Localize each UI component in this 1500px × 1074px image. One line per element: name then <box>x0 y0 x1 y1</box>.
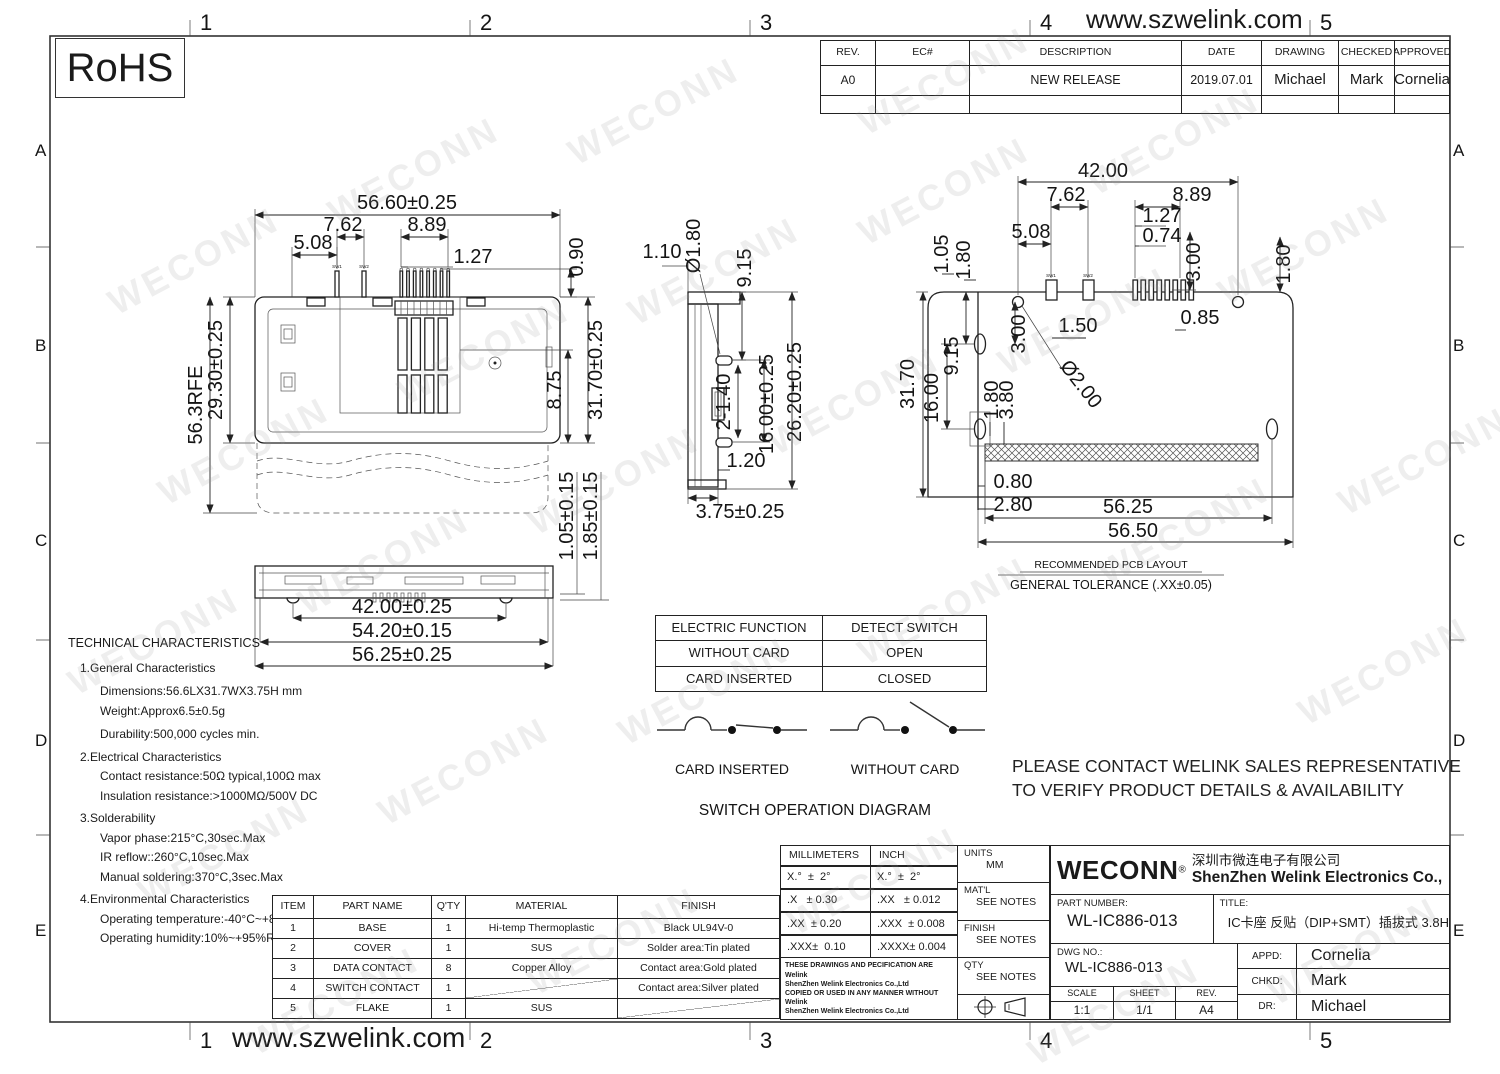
rohs-badge: RoHS <box>55 38 185 98</box>
title-block: WECONN® 深圳市微连电子有限公司 ShenZhen Welink Elec… <box>1050 845 1450 1020</box>
dim-label: 0.90 <box>566 238 588 277</box>
top-view: SW1 SW2 <box>185 192 607 513</box>
dim-label: 1.27 <box>1143 205 1182 227</box>
grid-col-label: 3 <box>760 1028 772 1053</box>
dim-label: 5.08 <box>294 232 333 254</box>
parts-cell: SWITCH CONTACT <box>313 979 431 998</box>
grid-row-label: B <box>1453 336 1464 355</box>
website-link-top[interactable]: www.szwelink.com <box>1086 4 1303 35</box>
dim-label: 5.08 <box>1012 221 1051 243</box>
parts-cell: 3 <box>273 959 313 978</box>
pcb-caption: RECOMMENDED PCB LAYOUT <box>1034 559 1188 571</box>
tech-line: Manual soldering:370°C,3sec.Max <box>100 868 321 888</box>
hatch-strip <box>985 444 1258 461</box>
dim-label: 1.80 <box>953 241 975 280</box>
parts-cell: 1 <box>431 939 465 958</box>
disclaimer-line: ShenZhen Welink Electronics Co.,Ltd <box>785 980 953 989</box>
parts-cell: COVER <box>313 939 431 958</box>
parts-cell: Hi-temp Thermoplastic <box>465 919 617 938</box>
dim-label: 56.25±0.25 <box>352 644 452 666</box>
finish-label: FINISH <box>964 923 1049 934</box>
sheet-value: 1/1 <box>1113 1002 1175 1019</box>
dim-label: 9.15 <box>734 249 756 288</box>
scale-label: SCALE <box>1051 987 1113 1001</box>
electric-cell: ELECTRIC FUNCTION <box>656 616 822 640</box>
parts-header: Q'TY <box>431 896 465 918</box>
rev-cell <box>1338 96 1394 113</box>
dim-label: 8.89 <box>408 214 447 236</box>
appd-value: Cornelia <box>1296 944 1449 968</box>
website-link-bottom[interactable]: www.szwelink.com <box>232 1022 465 1054</box>
parts-cell: Contact area:Gold plated <box>617 959 779 978</box>
electric-function-table: ELECTRIC FUNCTION DETECT SWITCH WITHOUT … <box>655 615 987 692</box>
parts-cell: 1 <box>431 919 465 938</box>
grid-row-label: C <box>1453 531 1465 550</box>
parts-cell: 1 <box>431 979 465 998</box>
copyright-disclaimer: THESE DRAWINGS AND PECIFICATION ARE Weli… <box>781 958 957 1019</box>
tol-header: INCH <box>870 846 957 865</box>
units-column: UNITS MM MAT'L SEE NOTES FINISH SEE NOTE… <box>957 846 1049 1019</box>
rev-cell: Cornelia <box>1394 66 1449 95</box>
rev-header: DATE <box>1181 41 1261 65</box>
rev-cell <box>1181 96 1261 113</box>
rev-cell <box>1394 96 1449 113</box>
dim-label: 1.50 <box>1059 315 1098 337</box>
rev-cell: Michael <box>1261 66 1338 95</box>
electric-cell: CARD INSERTED <box>656 667 822 691</box>
parts-header: ITEM <box>273 896 313 918</box>
switch-open-symbol <box>830 702 985 730</box>
pcb-layout-view: SW1 SW2 42.00 7.62 8.89 5.08 1.27 <box>897 160 1295 592</box>
dim-label: Ø1.80 <box>683 219 705 273</box>
grid-row-label: D <box>1453 731 1465 750</box>
dim-label: 56.50 <box>1108 520 1158 542</box>
disclaimer-line: ShenZhen Welink Electronics Co.,Ltd <box>785 1007 953 1016</box>
dim-label: Ø2.00 <box>1055 356 1106 412</box>
tol-cell: X.° ± 2° <box>781 867 870 888</box>
part-title-row: PART NUMBER: WL-IC886-013 TITLE: IC卡座 反贴… <box>1051 895 1449 944</box>
qty-value: SEE NOTES <box>964 971 1049 983</box>
card-outline-dashed <box>257 443 548 513</box>
dim-label: 0.74 <box>1143 225 1182 247</box>
electric-cell: CLOSED <box>822 667 986 691</box>
dim-label: 9.15 <box>941 337 963 376</box>
notice-line: TO VERIFY PRODUCT DETAILS & AVAILABILITY <box>1012 779 1461 803</box>
dim-label: 56.60±0.25 <box>357 192 457 214</box>
dim-label: 56.25 <box>1103 496 1153 518</box>
parts-cell: Black UL94V-0 <box>617 919 779 938</box>
grid-row-label: C <box>35 531 47 550</box>
product-title: IC卡座 反贴（DIP+SMT）插拔式 3.8H <box>1220 909 1449 931</box>
dim-label: 56.3RFE <box>185 366 207 445</box>
rohs-label: RoHS <box>67 46 174 91</box>
dr-value: Michael <box>1296 995 1449 1019</box>
dim-label: 54.20±0.15 <box>352 620 452 642</box>
top-view-dimensions: 56.60±0.25 7.62 8.89 5.08 1.27 0.90 8.75… <box>185 192 607 513</box>
chkd-value: Mark <box>1296 969 1449 993</box>
dim-label: 1.10 <box>643 241 682 263</box>
title-label: TITLE: <box>1220 898 1449 909</box>
dim-label: 1.05±0.15 <box>556 472 578 561</box>
parts-cell: Copper Alloy <box>465 959 617 978</box>
units-value: MM <box>964 859 1049 871</box>
rev-cell <box>969 96 1181 113</box>
dr-label: DR: <box>1238 995 1296 1019</box>
company-header: WECONN® 深圳市微连电子有限公司 ShenZhen Welink Elec… <box>1051 846 1449 895</box>
parts-cell: Contact area:Silver plated <box>617 979 779 998</box>
parts-cell <box>617 999 779 1018</box>
qty-label: QTY <box>964 960 1049 971</box>
parts-header: PART NAME <box>313 896 431 918</box>
grid-col-label: 4 <box>1040 1028 1052 1053</box>
dwg-no-label: DWG NO.: <box>1057 947 1237 958</box>
dim-label: 3.00 <box>1008 315 1030 354</box>
rev-header: CHECKED <box>1338 41 1394 65</box>
chkd-label: CHKD: <box>1238 969 1296 993</box>
grid-col-label: 1 <box>200 10 212 35</box>
units-label: UNITS <box>964 848 1049 859</box>
parts-cell: 1 <box>273 919 313 938</box>
grid-col-label: 5 <box>1320 10 1332 35</box>
dim-label: 29.30±0.25 <box>205 320 227 420</box>
tol-cell: .XX ± 0.012 <box>870 890 957 911</box>
part-number-label: PART NUMBER: <box>1057 898 1213 909</box>
tol-cell: .XXX± 0.10 <box>781 936 870 957</box>
rev-cell: A0 <box>821 66 875 95</box>
electric-cell: WITHOUT CARD <box>656 641 822 665</box>
dim-label: 3.75±0.25 <box>696 501 785 523</box>
notice-line: PLEASE CONTACT WELINK SALES REPRESENTATI… <box>1012 755 1461 779</box>
tech-line: 2.Electrical Characteristics <box>80 748 321 768</box>
rev-header: EC# <box>875 41 969 65</box>
dim-label: 1.20 <box>727 450 766 472</box>
tech-line: Weight:Approx6.5±0.5g <box>100 702 321 722</box>
tech-line: IR reflow::260°C,10sec.Max <box>100 848 321 868</box>
dim-label: 42.00±0.25 <box>352 596 452 618</box>
rev-value: A4 <box>1175 1002 1237 1019</box>
revision-table: REV. EC# DESCRIPTION DATE DRAWING CHECKE… <box>820 40 1450 114</box>
switch-closed-label: CARD INSERTED <box>675 761 789 777</box>
dim-label: 16.00±0.25 <box>756 354 778 454</box>
parts-cell: Solder area:Tin plated <box>617 939 779 958</box>
switch-open-label: WITHOUT CARD <box>851 761 960 777</box>
tech-line: 3.Solderability <box>80 809 321 829</box>
dim-label: 1.80 <box>1273 245 1295 284</box>
rev-header: DESCRIPTION <box>969 41 1181 65</box>
grid-col-label: 2 <box>480 1028 492 1053</box>
grid-col-label: 2 <box>480 10 492 35</box>
parts-cell: 8 <box>431 959 465 978</box>
engineering-drawing-page: { "page": { "website": "www.szwelink.com… <box>0 0 1500 1060</box>
dim-label: 31.70 <box>897 359 919 409</box>
dim-label: 26.20±0.25 <box>784 342 806 442</box>
grid-row-label: E <box>35 921 46 940</box>
dim-label: 2-1.40 <box>713 374 735 431</box>
dim-label: 1.27 <box>454 246 493 268</box>
dwg-no-value: WL-IC886-013 <box>1057 958 1237 976</box>
parts-cell: SUS <box>465 939 617 958</box>
tech-line: Durability:500,000 cycles min. <box>100 725 321 745</box>
dim-label: 3.80 <box>996 381 1018 420</box>
tol-cell: .XX ± 0.20 <box>781 913 870 934</box>
tolerance-table: MILLIMETERS INCH X.° ± 2° X.° ± 2° .X ± … <box>781 846 957 1019</box>
parts-cell: 5 <box>273 999 313 1018</box>
electric-cell: DETECT SWITCH <box>822 616 986 640</box>
grid-row-label: D <box>35 731 47 750</box>
grid-col-label: 5 <box>1320 1028 1332 1053</box>
matl-value: SEE NOTES <box>964 896 1049 908</box>
grid-col-label: 3 <box>760 10 772 35</box>
contact-pins <box>400 268 450 297</box>
parts-cell: 4 <box>273 979 313 998</box>
sales-notice: PLEASE CONTACT WELINK SALES REPRESENTATI… <box>1012 755 1461 802</box>
parts-table: ITEM PART NAME Q'TY MATERIAL FINISH 1 BA… <box>272 895 780 1019</box>
parts-cell <box>465 979 617 998</box>
rev-cell <box>821 96 875 113</box>
parts-header: FINISH <box>617 896 779 918</box>
rev-cell <box>1261 96 1338 113</box>
rev-cell: 2019.07.01 <box>1181 66 1261 95</box>
side-section-view: 1.10 Ø1.80 9.15 2-1.40 16.00±0.25 26.20±… <box>643 219 806 523</box>
pcb-view-dimensions: 42.00 7.62 8.89 5.08 1.27 0.74 3.00 1.80… <box>897 160 1295 592</box>
part-number-value: WL-IC886-013 <box>1057 909 1213 931</box>
side-view-dimensions: 1.10 Ø1.80 9.15 2-1.40 16.00±0.25 26.20±… <box>643 219 806 523</box>
parts-cell: FLAKE <box>313 999 431 1018</box>
rev-header: REV. <box>821 41 875 65</box>
parts-cell: SUS <box>465 999 617 1018</box>
dim-label: 31.70±0.25 <box>585 320 607 420</box>
finish-value: SEE NOTES <box>964 934 1049 946</box>
dim-label: 42.00 <box>1078 160 1128 182</box>
switch-operation-diagram: CARD INSERTED WITHOUT CARD SWITCH OPERAT… <box>655 692 995 832</box>
switch-diagram-title: SWITCH OPERATION DIAGRAM <box>699 802 931 819</box>
dim-label: 0.85 <box>1181 307 1220 329</box>
parts-cell: 2 <box>273 939 313 958</box>
sheet-label: SHEET <box>1113 987 1175 1001</box>
tolerance-block: MILLIMETERS INCH X.° ± 2° X.° ± 2° .X ± … <box>780 845 1050 1020</box>
matl-label: MAT'L <box>964 885 1049 896</box>
disclaimer-line: THESE DRAWINGS AND PECIFICATION ARE Weli… <box>785 961 953 979</box>
pcb-tolerance-caption: GENERAL TOLERANCE (.XX±0.05) <box>1010 578 1212 592</box>
parts-cell: BASE <box>313 919 431 938</box>
rev-cell: NEW RELEASE <box>969 66 1181 95</box>
contact-springs <box>398 318 447 413</box>
rev-cell <box>875 66 969 95</box>
tol-header: MILLIMETERS <box>781 846 870 865</box>
scale-value: 1:1 <box>1051 1002 1113 1019</box>
parts-cell: DATA CONTACT <box>313 959 431 978</box>
dim-label: 0.80 <box>994 471 1033 493</box>
dim-label: 2.80 <box>994 494 1033 516</box>
third-angle-projection-icon <box>973 995 1035 1019</box>
rev-header: DRAWING <box>1261 41 1338 65</box>
rev-header: APPROVED <box>1394 41 1449 65</box>
grid-row-label: A <box>1453 141 1465 160</box>
tol-cell: .X ± 0.30 <box>781 890 870 911</box>
dim-label: 1.05 <box>931 235 953 274</box>
grid-row-label: E <box>1453 921 1464 940</box>
company-logo: WECONN <box>1057 855 1178 885</box>
tech-line: Insulation resistance:>1000MΩ/500V DC <box>100 787 321 807</box>
tol-cell: .XXX ± 0.008 <box>870 913 957 934</box>
company-name-en: ShenZhen Welink Electronics Co.,Ltd <box>1192 869 1443 888</box>
tech-line: Vapor phase:215°C,30sec.Max <box>100 829 321 849</box>
tech-line: Contact resistance:50Ω typical,100Ω max <box>100 767 321 787</box>
electric-cell: OPEN <box>822 641 986 665</box>
rev-label: REV. <box>1175 987 1237 1001</box>
rev-cell: Mark <box>1338 66 1394 95</box>
disclaimer-line: COPIED OR USED IN ANY MANNER WITHOUT Wel… <box>785 989 953 1007</box>
tol-cell: X.° ± 2° <box>870 867 957 888</box>
technical-title: TECHNICAL CHARACTERISTICS <box>68 634 321 654</box>
rev-cell <box>875 96 969 113</box>
appd-label: APPD: <box>1238 944 1296 968</box>
dim-label: 7.62 <box>1047 184 1086 206</box>
tech-line: 1.General Characteristics <box>80 659 321 679</box>
company-name-cn: 深圳市微连电子有限公司 <box>1192 853 1443 869</box>
grid-col-label: 1 <box>200 1028 212 1053</box>
dim-label: 8.89 <box>1173 184 1212 206</box>
dim-label: 1.85±0.15 <box>580 472 602 561</box>
d im-label: 8.75 <box>544 371 566 410</box>
approval-row: DWG NO.: WL-IC886-013 SCALE SHEET REV. 1… <box>1051 944 1449 1019</box>
grid-col-label: 4 <box>1040 10 1052 35</box>
grid-row-label: B <box>35 336 46 355</box>
parts-cell: 1 <box>431 999 465 1018</box>
tech-line: Dimensions:56.6LX31.7WX3.75H mm <box>100 682 321 702</box>
grid-row-label: A <box>35 141 47 160</box>
registered-mark: ® <box>1178 864 1185 875</box>
dim-label: 16.00 <box>921 373 943 423</box>
tol-cell: .XXXX± 0.004 <box>870 936 957 957</box>
dim-label: 3.00 <box>1183 243 1205 282</box>
parts-header: MATERIAL <box>465 896 617 918</box>
